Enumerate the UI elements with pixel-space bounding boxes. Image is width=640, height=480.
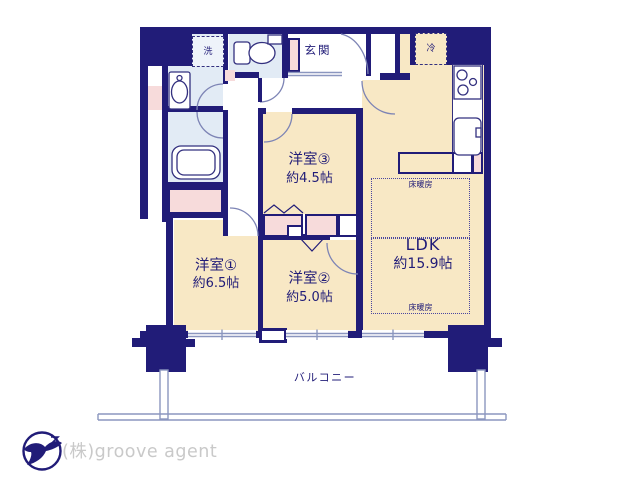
bathroom-door-arc bbox=[197, 112, 223, 138]
entrance-step-line bbox=[288, 73, 342, 76]
toilet-shelf bbox=[268, 35, 282, 44]
toilet-bowl bbox=[249, 43, 275, 64]
toilet-tank bbox=[234, 42, 250, 64]
washroom-door-arc bbox=[197, 84, 223, 110]
front-door-arc bbox=[341, 34, 368, 74]
sanitary-fixtures bbox=[169, 35, 282, 179]
room2-door-arc bbox=[327, 243, 358, 274]
closet-door-marks bbox=[264, 205, 324, 251]
fixtures-overlay bbox=[0, 0, 640, 480]
door-arcs bbox=[197, 34, 395, 274]
windows bbox=[188, 330, 424, 341]
room1-door-arc bbox=[230, 208, 258, 236]
balcony-post-left bbox=[160, 370, 168, 419]
washbasin-bowl bbox=[172, 81, 188, 103]
ldk-door-arc bbox=[362, 81, 395, 114]
floor-plan: 洋室① 約6.5帖 洋室② 約5.0帖 洋室③ 約4.5帖 LDK 約15.9帖… bbox=[0, 0, 640, 480]
balcony-post-right bbox=[477, 370, 485, 419]
folding-door-mark-1 bbox=[264, 205, 303, 213]
bathtub-inner bbox=[177, 150, 215, 175]
toilet-door-arc bbox=[260, 78, 284, 102]
washbasin-tap bbox=[177, 76, 182, 81]
room3-door-arc bbox=[264, 114, 292, 142]
folding-door-mark-2 bbox=[300, 238, 324, 251]
balcony-railing bbox=[98, 370, 506, 420]
kitchen-fixtures bbox=[454, 66, 481, 155]
groove-agent-logo-icon bbox=[24, 433, 63, 470]
sink-faucet bbox=[476, 128, 481, 137]
